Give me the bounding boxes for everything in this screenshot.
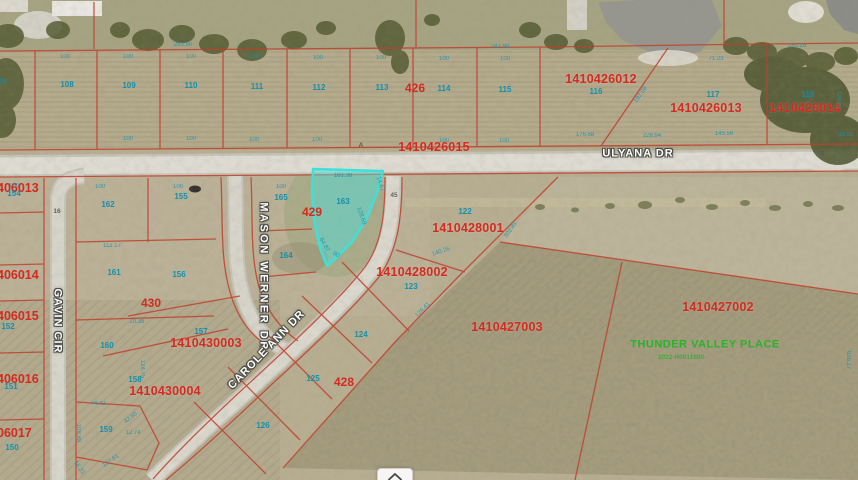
parcel-id-label: 1410427002: [682, 301, 754, 314]
parcel-map[interactable]: 1410426012141042601314104260141410426015…: [0, 0, 858, 480]
block-number-label: 429: [302, 206, 322, 218]
measurement-label: 100: [173, 184, 183, 190]
lot-number-label: 113: [376, 84, 389, 92]
measurement-label: 241.90: [491, 44, 509, 50]
parcel-id-label-clipped: 06017: [0, 426, 32, 440]
lot-number-label: 114: [438, 85, 451, 93]
parcel-id-label: 1410426014: [769, 102, 841, 115]
measurement-label: 626.17: [845, 351, 851, 369]
lot-number-label: 157: [194, 328, 207, 336]
lot-number-label: 152: [1, 323, 14, 331]
measurement-label: 192.08: [633, 86, 648, 104]
parcel-id-label: 1410430003: [170, 337, 242, 350]
measurement-label: 20.38: [129, 319, 144, 325]
parcel-id-label-clipped: 406014: [0, 268, 39, 282]
measurement-label: 71.23: [708, 56, 723, 62]
measurement-label: 100: [60, 54, 70, 60]
lot-number-label: 115: [499, 86, 512, 94]
lot-number-label: 117: [707, 91, 720, 99]
measurement-label: 145.56: [715, 131, 733, 137]
lot-number-label: 160: [100, 342, 113, 350]
lot-number-label: 150: [5, 444, 18, 452]
lot-number-label: 154: [7, 190, 20, 198]
measurement-label: 128.69: [355, 206, 366, 225]
measurement-label: 16.81: [838, 132, 853, 138]
measurement-label: 74.42: [90, 401, 105, 407]
measurement-label: 100: [439, 56, 449, 62]
street-name-label: MASON WERNER DR: [258, 202, 269, 351]
block-number-label: 430: [141, 297, 161, 309]
lot-number-label: 116: [590, 88, 603, 96]
road-marker-label: 45: [390, 193, 397, 200]
lot-number-label: 161: [107, 269, 120, 277]
parcel-id-label-clipped: 406015: [0, 309, 39, 323]
lot-number-label: 111: [251, 83, 263, 91]
measurement-label: 228.94: [643, 133, 661, 139]
lot-number-label: 108: [60, 81, 73, 89]
measurement-label: 124.81: [835, 91, 841, 109]
lot-number-label: 155: [174, 193, 187, 201]
block-number-label: 426: [405, 82, 425, 94]
measurement-label: 100: [186, 136, 196, 142]
measurement-label: 42.65: [123, 411, 138, 425]
measurement-label: 64.87: [318, 237, 331, 253]
parcel-id-label: 1410426013: [670, 102, 742, 115]
measurement-label: 140.26: [431, 246, 450, 257]
measurement-label: 14.67: [375, 176, 385, 192]
measurement-label: 16.31: [72, 460, 86, 476]
road-marker-label: 16: [53, 209, 60, 216]
measurement-label: 100: [123, 54, 133, 60]
lot-number-label: 123: [404, 283, 417, 291]
collapse-toolbar-button[interactable]: [377, 468, 413, 480]
measurement-label: 302.81: [503, 221, 518, 239]
measurement-label: 112.17: [103, 243, 121, 249]
lot-number-label: 118: [802, 91, 815, 99]
parcel-id-label: 1410427003: [471, 321, 543, 334]
measurement-label: 124.75: [139, 360, 145, 378]
street-name-label: ULYANA DR: [602, 149, 673, 160]
lot-number-label: 159: [99, 426, 112, 434]
measurement-label: 100: [376, 55, 386, 61]
lot-number-label: 156: [172, 271, 185, 279]
lot-number-label: 110: [185, 82, 198, 90]
measurement-label: 100: [499, 138, 509, 144]
map-labels-layer: 1410426012141042601314104260141410426015…: [0, 0, 858, 480]
lot-number-label: 165: [274, 194, 287, 202]
lot-number-label: 125: [306, 375, 319, 383]
measurement-label: 80: [332, 251, 341, 260]
measurement-label: 100: [312, 137, 322, 143]
measurement-label: 12.74: [125, 430, 140, 436]
lot-number-label: 164: [279, 252, 292, 260]
lot-number-label: 112: [313, 84, 326, 92]
measurement-label: 100: [186, 54, 196, 60]
measurement-label: 127.61: [102, 453, 120, 468]
measurement-label: 100: [123, 136, 133, 142]
lot-number-label: 151: [4, 383, 17, 391]
measurement-label: 180.28: [788, 43, 806, 49]
measurement-label: 100: [313, 55, 323, 61]
lot-number-label: 109: [122, 82, 135, 90]
measurement-label: 161.38: [334, 173, 352, 179]
measurement-label: 100: [9, 183, 19, 189]
parcel-id-label: 1410428002: [376, 266, 448, 279]
measurement-label: 100: [500, 56, 510, 62]
parcel-id-label: 1410430004: [129, 385, 201, 398]
road-marker-label: A: [359, 143, 364, 150]
measurement-label: 100: [95, 184, 105, 190]
lot-number-label: 163: [336, 198, 349, 206]
measurement-label: 100: [249, 137, 259, 143]
measurement-label: 100: [439, 138, 449, 144]
chevron-up-icon: [387, 472, 403, 480]
lot-number-label: 162: [101, 201, 114, 209]
measurement-label: 126.41: [414, 301, 431, 318]
parcel-id-label: 1410426012: [565, 73, 637, 86]
lot-number-label: 124: [354, 331, 367, 339]
parcel-id-label: 1410428001: [432, 222, 504, 235]
street-name-label: GAVIN CIR: [52, 288, 63, 353]
measurement-label: 176.58: [576, 132, 594, 138]
lot-number-label: 105: [0, 78, 7, 86]
road-marker-label: 2: [820, 151, 824, 158]
lot-number-label: 126: [256, 422, 269, 430]
lot-number-label: 122: [458, 208, 471, 216]
measurement-label: 100: [249, 54, 259, 60]
measurement-label: 283.90: [174, 42, 192, 48]
plat-document-label: 2022-R0011880: [658, 355, 704, 362]
measurement-label: 100: [276, 184, 286, 190]
block-number-label: 428: [334, 376, 354, 388]
parcel-id-label: 1410426015: [398, 141, 470, 154]
subdivision-name-label: THUNDER VALLEY PLACE: [630, 340, 780, 351]
measurement-label: 108.88: [75, 424, 81, 442]
